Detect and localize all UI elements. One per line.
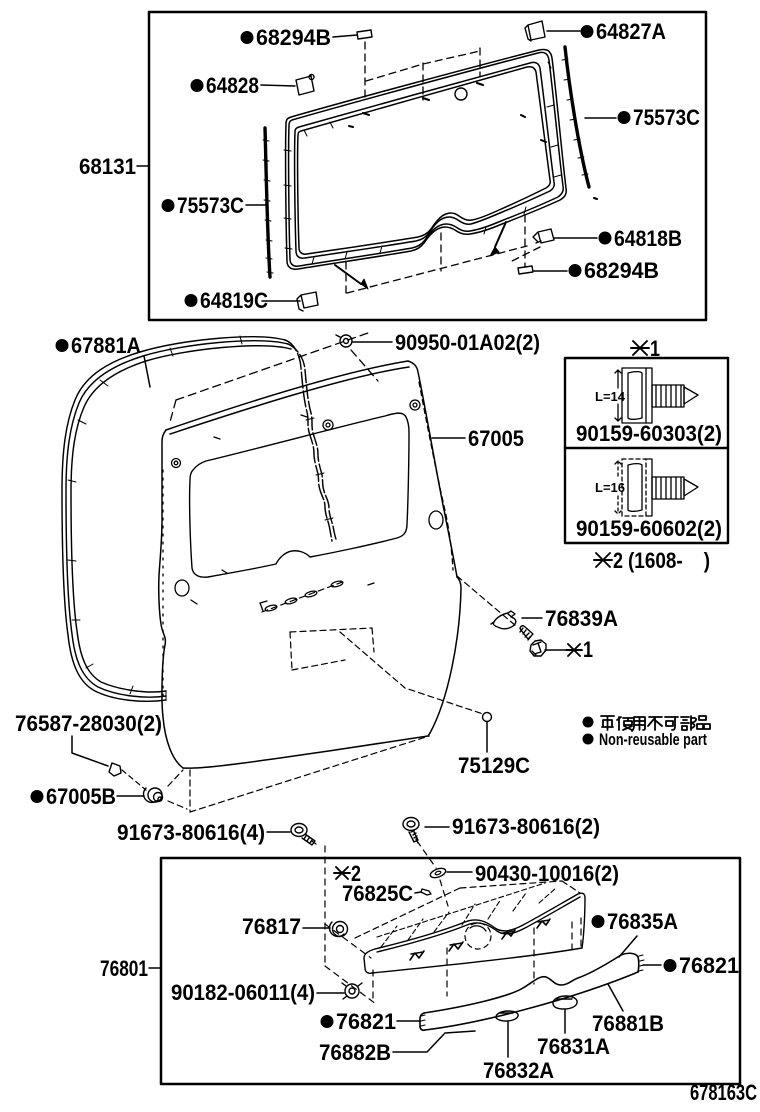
svg-text:76832A: 76832A: [483, 1058, 554, 1083]
svg-text:76587-28030(2): 76587-28030(2): [15, 711, 162, 736]
svg-text:L=16: L=16: [595, 480, 625, 495]
svg-text:64827A: 64827A: [596, 19, 666, 44]
svg-text:76821: 76821: [336, 1009, 396, 1034]
svg-text:76831A: 76831A: [537, 1034, 610, 1059]
svg-text:90950-01A02(2): 90950-01A02(2): [395, 330, 540, 355]
svg-text:68294B: 68294B: [256, 25, 331, 50]
svg-text:76882B: 76882B: [319, 1040, 391, 1065]
svg-text:1: 1: [650, 336, 660, 361]
svg-text:91673-80616(4): 91673-80616(4): [117, 820, 265, 845]
svg-text:68131: 68131: [79, 154, 136, 179]
svg-text:76817: 76817: [242, 914, 301, 939]
svg-text:76801: 76801: [100, 956, 148, 981]
svg-text:90159-60602(2): 90159-60602(2): [576, 516, 722, 541]
svg-text:1: 1: [583, 637, 593, 662]
svg-text:90182-06011(4): 90182-06011(4): [171, 980, 315, 1005]
svg-text:75573C: 75573C: [633, 105, 700, 130]
svg-text:L=14: L=14: [595, 389, 626, 404]
svg-text:67881A: 67881A: [71, 333, 141, 358]
svg-text:2: 2: [613, 548, 623, 573]
svg-text:67005B: 67005B: [46, 784, 116, 809]
svg-text:91673-80616(2): 91673-80616(2): [452, 814, 600, 839]
svg-text:76825C: 76825C: [342, 881, 413, 906]
svg-text:64828: 64828: [206, 73, 259, 98]
svg-text:(1608- ): (1608- ): [628, 548, 710, 573]
svg-text:678163C: 678163C: [690, 1080, 757, 1105]
svg-text:76821: 76821: [679, 953, 739, 978]
svg-text:75129C: 75129C: [458, 753, 530, 778]
svg-text:90430-10016(2): 90430-10016(2): [475, 861, 619, 886]
svg-text:Non-reusable part: Non-reusable part: [599, 730, 707, 749]
svg-text:90159-60303(2): 90159-60303(2): [576, 421, 722, 446]
svg-text:64819C: 64819C: [200, 288, 268, 313]
svg-text:68294B: 68294B: [584, 258, 659, 283]
svg-text:67005: 67005: [468, 426, 524, 451]
svg-text:76835A: 76835A: [607, 909, 678, 934]
svg-text:76881B: 76881B: [592, 1011, 664, 1036]
svg-text:64818B: 64818B: [614, 226, 682, 251]
svg-text:76839A: 76839A: [545, 606, 618, 631]
svg-text:75573C: 75573C: [177, 193, 244, 218]
